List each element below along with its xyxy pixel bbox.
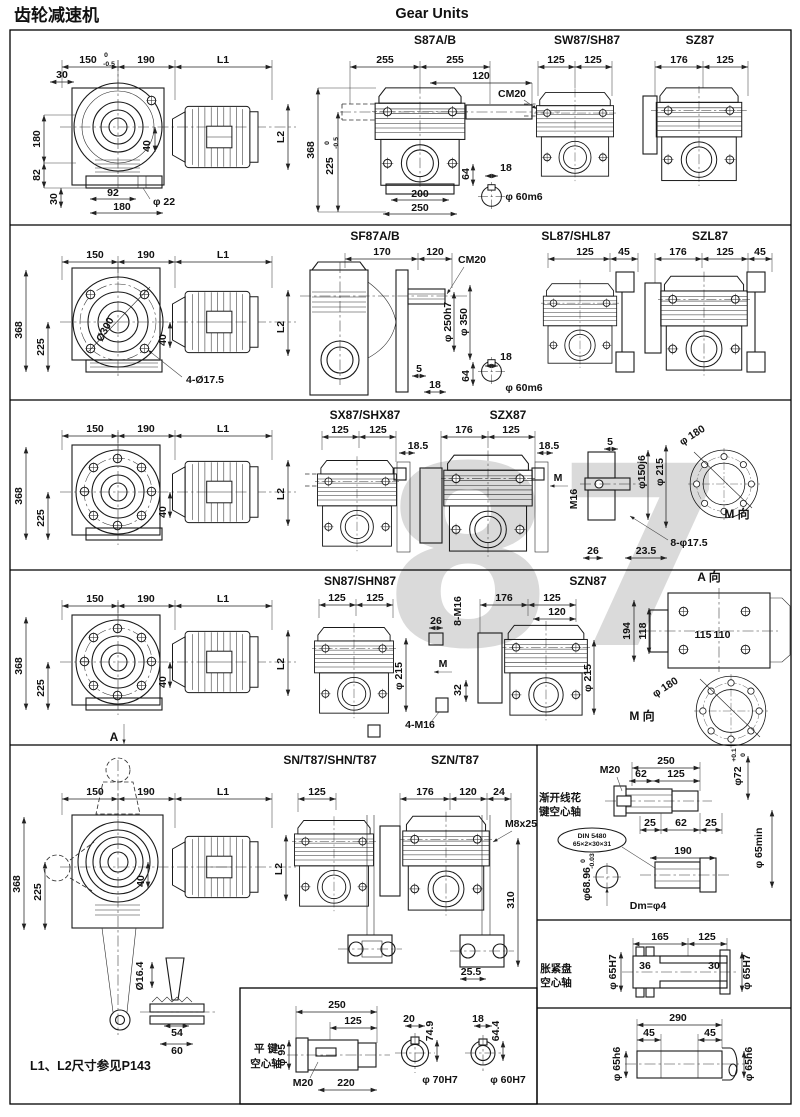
dim-40: 40 (157, 334, 169, 346)
dim-40: 40 (157, 676, 169, 688)
dim-phi16-4: Ø16.4 (134, 962, 146, 991)
dim-125b: 125 (366, 592, 384, 604)
dim-125b: 125 (369, 424, 387, 436)
dim-18-5: 18.5 (408, 440, 429, 452)
dim-M8x25: M8x25 (505, 818, 537, 830)
dim-120: 120 (472, 70, 490, 82)
dim-24: 24 (493, 786, 505, 798)
row5-panel-sznt87: SZN/T87 176 120 24 M8x25 310 25.5 (380, 753, 537, 979)
dim-L2: L2 (275, 488, 287, 500)
dim-Dm-phi4: Dm=φ4 (630, 900, 667, 912)
dim-30-bottom: 30 (48, 193, 60, 205)
dim-176: 176 (495, 592, 513, 604)
dim-250: 250 (657, 755, 675, 767)
dim-25b: 25 (705, 817, 717, 829)
dim-118: 118 (637, 622, 649, 639)
dim-64: 64 (460, 370, 472, 382)
dim-74-9: 74.9 (424, 1021, 436, 1042)
dim-40: 40 (157, 506, 169, 518)
dim-26: 26 (430, 615, 442, 627)
label-m-view: M 向 (724, 506, 749, 521)
dim-92: 92 (107, 187, 119, 199)
row5-panel-snt87: SN/T87/SHN/T87 125 (283, 753, 402, 963)
dim-225-tol-lo: -0.5 (333, 137, 340, 149)
row1-shaft-section: 64 18 φ 60m6 (460, 162, 543, 209)
dim-phi65h7-left: φ 65H7 (607, 954, 619, 990)
dim-125: 125 (344, 1015, 362, 1027)
label-a-view: A 向 (697, 569, 721, 584)
dim-125: 125 (308, 786, 326, 798)
dim-64-4: 64.4 (490, 1021, 502, 1042)
dim-125b: 125 (584, 54, 602, 66)
dim-190: 190 (137, 54, 155, 66)
panel-title-s87ab: S87A/B (414, 33, 456, 47)
dim-phi68-96-tol-lo: -0.03 (589, 853, 596, 869)
dim-45: 45 (618, 246, 630, 258)
dim-255b: 255 (446, 54, 464, 66)
dim-phi72-tol-lo: 0 (740, 753, 747, 757)
dim-150-tol-hi: 0 (104, 52, 108, 59)
dim-62b: 62 (675, 817, 687, 829)
note-L1-L2: L1、L2尺寸参见P143 (30, 1058, 151, 1073)
dim-64: 64 (460, 168, 472, 180)
dim-phi70H7: φ 70H7 (422, 1074, 458, 1086)
label-din5480: DIN 5480 (578, 833, 607, 840)
dim-18: 18 (500, 351, 512, 363)
dim-L2: L2 (275, 658, 287, 670)
dim-phi60m6: φ 60m6 (505, 382, 542, 394)
row2-shaft-section: 64 18 φ 60m6 (460, 351, 543, 394)
dim-150-tol-lo: -0.5 (103, 61, 115, 68)
label-shrink-disc-1: 胀紧盘 (540, 962, 572, 975)
dim-225: 225 (32, 883, 44, 901)
dim-125: 125 (698, 931, 716, 943)
dim-190: 190 (674, 845, 692, 857)
row3-side-view: 150 190 L1 368 225 40 L2 (13, 423, 296, 545)
dim-125: 125 (576, 246, 594, 258)
label-spline-shaft-1: 渐开线花 (539, 791, 581, 804)
row2-side-view: 150 190 L1 Ø300 4-Ø17.5 368 225 40 L2 (13, 249, 296, 386)
dim-L1: L1 (217, 249, 229, 261)
dim-phi65h7-right: φ 65H7 (741, 954, 753, 990)
dim-L2: L2 (273, 863, 285, 875)
dim-phi150j6: φ150j6 (636, 455, 648, 489)
panel-title-sn87: SN87/SHN87 (324, 574, 396, 588)
dim-phi215: φ 215 (654, 458, 666, 486)
dim-125: 125 (543, 592, 561, 604)
dim-190: 190 (137, 423, 155, 435)
dim-150: 150 (79, 54, 97, 66)
dim-125: 125 (716, 246, 734, 258)
dim-M20: M20 (600, 764, 621, 776)
dim-phi300: Ø300 (94, 315, 117, 343)
dim-120: 120 (548, 606, 566, 618)
dim-M20: M20 (293, 1077, 314, 1089)
dim-190: 190 (137, 593, 155, 605)
dim-36: 36 (639, 960, 651, 972)
dim-250: 250 (411, 202, 429, 214)
row2-panel-sf87ab: SF87A/B 170 120 CM20 φ 250h7 φ 350 5 18 (300, 229, 486, 395)
label-shrink-disc-2: 空心轴 (540, 976, 572, 989)
dim-225-tol-hi: 0 (324, 141, 331, 145)
dim-190: 190 (137, 249, 155, 261)
dim-368: 368 (305, 141, 317, 159)
dim-220: 220 (337, 1077, 355, 1089)
dim-phi250h7: φ 250h7 (442, 302, 454, 342)
dim-150: 150 (86, 593, 104, 605)
dim-190: 190 (137, 786, 155, 798)
row1-panel-sz87: SZ87 176 125 (643, 33, 750, 186)
watermark-87: 87 (381, 413, 729, 704)
dim-phi60m6: φ 60m6 (505, 191, 542, 203)
dim-62: 62 (635, 768, 647, 780)
dim-176: 176 (670, 54, 688, 66)
dim-18: 18 (472, 1013, 484, 1025)
dim-368: 368 (13, 657, 25, 675)
dim-phi350: φ 350 (458, 308, 470, 336)
dim-20: 20 (403, 1013, 415, 1025)
label-m-view: M 向 (629, 708, 654, 723)
dim-phi22: φ 22 (153, 196, 175, 208)
dim-120: 120 (426, 246, 444, 258)
dim-32: 32 (452, 684, 464, 696)
dim-225: 225 (35, 338, 47, 356)
dim-26: 26 (587, 545, 599, 557)
dim-176: 176 (416, 786, 434, 798)
dim-phi60H7: φ 60H7 (490, 1074, 526, 1086)
panel-title-sx87: SX87/SHX87 (330, 408, 401, 422)
section-marker-a: A (110, 730, 119, 744)
dim-150: 150 (86, 786, 104, 798)
dim-L1: L1 (217, 786, 229, 798)
dim-L1: L1 (217, 54, 229, 66)
dim-368: 368 (13, 321, 25, 339)
dim-phi68-96: φ68.96 (581, 867, 593, 901)
dim-5: 5 (607, 436, 613, 448)
dim-phi65min: φ 65min (753, 828, 765, 869)
dim-45b: 45 (704, 1027, 716, 1039)
dim-60: 60 (171, 1045, 183, 1057)
bottom-key-section: Ø16.4 54 60 L1、L2尺寸参见P143 (30, 958, 215, 1073)
dim-200: 200 (411, 188, 429, 200)
dim-54: 54 (171, 1027, 183, 1039)
dim-250: 250 (328, 999, 346, 1011)
dim-225: 225 (324, 157, 336, 175)
dim-225: 225 (35, 679, 47, 697)
page-header: 齿轮减速机 Gear Units (14, 5, 469, 25)
row4-side-view: 150 190 L1 368 225 40 L2 A (13, 593, 296, 744)
dim-L1: L1 (217, 593, 229, 605)
dim-180-left: 180 (31, 130, 43, 148)
dim-phi65h6-left: φ 65h6 (611, 1047, 623, 1082)
row2-panel-sl87: SL87/SHL87 125 45 (536, 229, 638, 372)
dim-45a: 45 (643, 1027, 655, 1039)
dim-phi215: φ 215 (582, 664, 594, 692)
panel-title-sf87ab: SF87A/B (350, 229, 400, 243)
dim-M: M (554, 472, 563, 484)
row5-spline-hollow-shaft: 渐开线花 键空心轴 250 M20 62 125 φ72 +0.1 0 25 6… (538, 748, 772, 912)
dim-phi65h6-right: φ 65h6 (743, 1047, 755, 1082)
dim-30: 30 (708, 960, 720, 972)
dim-25a: 25 (644, 817, 656, 829)
dim-4-M16: 4-M16 (405, 719, 435, 731)
dim-L1: L1 (217, 423, 229, 435)
panel-title-szl87: SZL87 (692, 229, 728, 243)
label-spline-shaft-2: 键空心轴 (538, 805, 581, 818)
panel-title-sznt87: SZN/T87 (431, 753, 479, 767)
dim-125: 125 (667, 768, 685, 780)
row5-side-view: 150 190 L1 368 225 40 L2 (11, 758, 296, 1035)
panel-title-szx87: SZX87 (490, 408, 527, 422)
dim-M: M (439, 658, 448, 670)
dim-255a: 255 (376, 54, 394, 66)
label-flat-key-1: 平 键 (254, 1042, 278, 1055)
dim-368: 368 (11, 875, 23, 893)
dim-4-phi17-5: 4-Ø17.5 (186, 374, 224, 386)
dim-8-phi17-5: 8-φ17.5 (670, 537, 707, 549)
dim-170: 170 (373, 246, 391, 258)
dim-120: 120 (459, 786, 477, 798)
label-din5480-spec: 65×2×30×31 (573, 841, 612, 848)
page-title-cn: 齿轮减速机 (14, 5, 99, 25)
dim-150: 150 (86, 423, 104, 435)
bottom-flat-key-box: 平 键 空心轴 250 125 φ 95 M20 220 20 74.9 φ 7… (250, 999, 526, 1090)
dim-phi215: φ 215 (393, 662, 405, 690)
dim-82: 82 (31, 169, 43, 181)
dim-18: 18 (429, 379, 441, 391)
dim-194: 194 (621, 622, 633, 640)
dim-115: 115 (695, 629, 712, 641)
dim-18-5: 18.5 (539, 440, 560, 452)
dim-30-top: 30 (56, 69, 68, 81)
page-title-en: Gear Units (395, 6, 468, 22)
dim-40: 40 (141, 140, 153, 152)
dim-cm20: CM20 (498, 88, 526, 100)
dim-368: 368 (13, 487, 25, 505)
dim-225: 225 (35, 509, 47, 527)
panel-title-sl87: SL87/SHL87 (541, 229, 611, 243)
dim-125a: 125 (328, 592, 346, 604)
dim-18: 18 (500, 162, 512, 174)
dim-phi95: φ 95 (276, 1044, 288, 1066)
panel-title-sz87: SZ87 (686, 33, 715, 47)
row1-panel-sw87: SW87/SH87 125 125 (524, 33, 621, 181)
row2-panel-szl87: SZL87 176 125 45 (645, 229, 772, 376)
dim-23-5: 23.5 (636, 545, 657, 557)
dim-25-5: 25.5 (461, 966, 482, 978)
dim-310: 310 (505, 891, 517, 909)
dim-290: 290 (669, 1012, 687, 1024)
panel-title-szn87: SZN87 (569, 574, 607, 588)
dim-L2: L2 (275, 131, 287, 143)
drawing-canvas: 齿轮减速机 Gear Units 87 150 0 -0.5 190 L1 30… (0, 0, 800, 1117)
dim-176: 176 (455, 424, 473, 436)
dim-L2: L2 (275, 321, 287, 333)
dim-cm20: CM20 (458, 254, 486, 266)
row5-shrink-disc-shaft: 胀紧盘 空心轴 165 125 36 30 φ 65H7 φ 65H7 (540, 931, 753, 997)
panel-title-snt87: SN/T87/SHN/T87 (283, 753, 377, 767)
dim-150: 150 (86, 249, 104, 261)
dim-8-M16: 8-M16 (452, 596, 464, 626)
panel-title-sw87: SW87/SH87 (554, 33, 620, 47)
row1-panel-s87ab: S87A/B 255 255 120 CM20 200 250 368 225 … (305, 33, 560, 214)
dim-110: 110 (714, 629, 731, 641)
row5-solid-shaft-290: 290 45 45 φ 65h6 φ 65h6 (611, 1012, 755, 1081)
dim-176: 176 (669, 246, 687, 258)
dim-45: 45 (754, 246, 766, 258)
catalog-page: 齿轮减速机 Gear Units 87 150 0 -0.5 190 L1 30… (0, 0, 800, 1117)
dim-180-bottom: 180 (113, 201, 131, 213)
dim-M16: M16 (568, 489, 580, 510)
dim-125: 125 (716, 54, 734, 66)
dim-165: 165 (651, 931, 669, 943)
dim-125a: 125 (547, 54, 565, 66)
dim-125a: 125 (331, 424, 349, 436)
dim-phi72: φ72 (732, 766, 744, 785)
dim-phi72-tol-hi: +0.1 (731, 748, 738, 762)
dim-5: 5 (416, 363, 422, 375)
dim-40: 40 (135, 875, 147, 887)
dim-125: 125 (502, 424, 520, 436)
row1-side-view: 150 0 -0.5 190 L1 30 L2 180 82 30 92 180… (31, 52, 296, 213)
dim-phi68-96-tol-hi: 0 (580, 859, 587, 863)
